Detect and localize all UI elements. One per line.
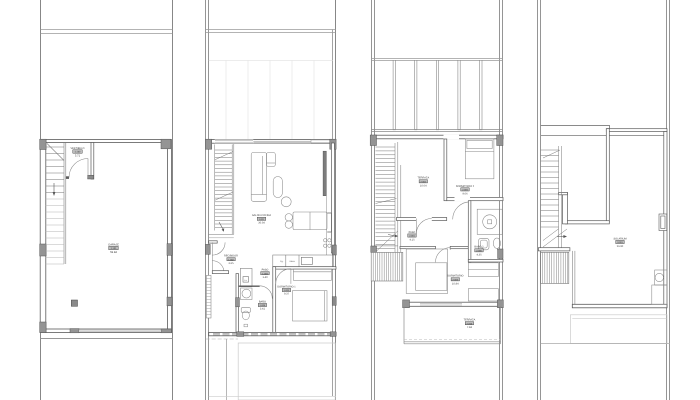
svg-text:1.101: 1.101 (111, 247, 117, 250)
svg-text:BAÑO 2: BAÑO 2 (474, 245, 484, 249)
svg-text:3.001: 3.001 (617, 241, 623, 244)
svg-text:2.003: 2.003 (453, 278, 459, 281)
svg-text:Fg.: Fg. (280, 260, 283, 263)
svg-text:GARAJE: GARAJE (108, 243, 119, 246)
svg-text:4.35: 4.35 (476, 253, 482, 256)
svg-text:BAÑO: BAÑO (259, 299, 266, 303)
svg-text:2.001: 2.001 (409, 235, 415, 238)
svg-text:Micro.: Micro. (290, 260, 296, 263)
svg-text:1.003: 1.003 (284, 289, 290, 292)
svg-text:3.41: 3.41 (260, 308, 266, 311)
svg-text:56.90: 56.90 (617, 245, 624, 248)
svg-text:1.002: 1.002 (228, 258, 234, 261)
svg-text:4.15: 4.15 (409, 238, 415, 241)
svg-text:VESTIBULO: VESTIBULO (70, 147, 84, 150)
svg-text:2.004: 2.004 (462, 189, 468, 192)
svg-text:DORMITORIO 1: DORMITORIO 1 (277, 285, 296, 288)
svg-text:2.005: 2.005 (476, 249, 482, 252)
svg-text:10.84: 10.84 (452, 282, 459, 285)
svg-text:1.005: 1.005 (260, 304, 266, 307)
svg-text:7.84: 7.84 (467, 326, 473, 329)
svg-text:2.002: 2.002 (421, 180, 427, 183)
svg-text:RECIBIDOR: RECIBIDOR (224, 255, 238, 258)
svg-text:SOLARIUM: SOLARIUM (613, 237, 626, 240)
svg-text:1.40: 1.40 (262, 276, 268, 279)
svg-text:DORMITORIO 2: DORMITORIO 2 (456, 185, 475, 188)
svg-text:59.84: 59.84 (110, 251, 117, 254)
svg-text:9.06: 9.06 (462, 193, 468, 196)
svg-text:DORMITORIO: DORMITORIO (447, 275, 463, 278)
svg-text:PASO: PASO (409, 231, 416, 234)
svg-text:PASO: PASO (262, 269, 269, 272)
svg-text:TERRAZA: TERRAZA (417, 177, 429, 180)
svg-text:30.54: 30.54 (258, 222, 265, 225)
svg-text:2.006: 2.006 (467, 322, 473, 325)
svg-text:9.37: 9.37 (284, 293, 290, 296)
svg-text:1.102: 1.102 (75, 151, 81, 154)
svg-text:SALON-COCINA: SALON-COCINA (252, 214, 271, 217)
svg-text:TERRAZA: TERRAZA (464, 319, 476, 322)
svg-text:5.71: 5.71 (75, 155, 81, 158)
svg-text:1.001: 1.001 (259, 218, 265, 221)
svg-text:1.004: 1.004 (262, 272, 268, 275)
svg-text:2.65: 2.65 (228, 262, 234, 265)
svg-text:10.04: 10.04 (420, 184, 427, 187)
